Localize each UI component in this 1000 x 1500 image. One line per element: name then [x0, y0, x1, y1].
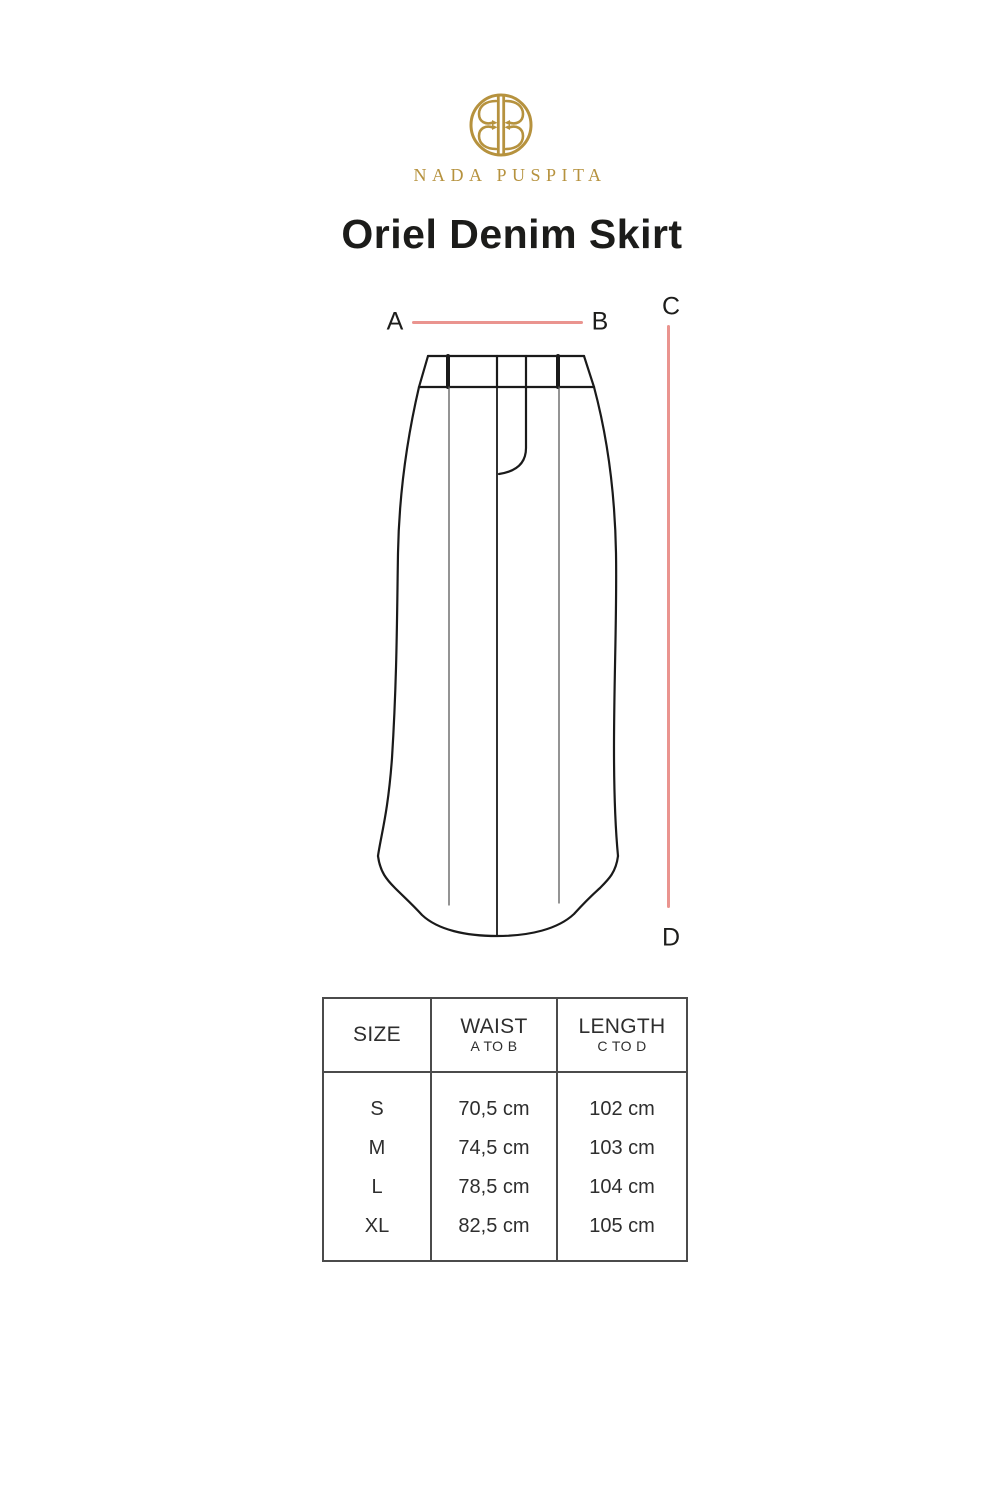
length-value: 102 cm [589, 1099, 655, 1119]
brand-logo-icon [467, 91, 535, 159]
measure-label-c: C [662, 293, 680, 322]
column-header-length: LENGTH C TO D [558, 999, 686, 1071]
measure-label-d: D [662, 924, 680, 953]
size-value: L [371, 1177, 382, 1197]
waist-value: 70,5 cm [458, 1099, 529, 1119]
size-column: S M L XL [324, 1073, 432, 1260]
waist-value: 74,5 cm [458, 1138, 529, 1158]
size-table-header: SIZE WAIST A TO B LENGTH C TO D [324, 999, 686, 1073]
column-subheader-length: C TO D [597, 1039, 646, 1054]
size-table: SIZE WAIST A TO B LENGTH C TO D S M L XL… [322, 997, 688, 1262]
size-value: XL [365, 1216, 389, 1236]
length-value: 105 cm [589, 1216, 655, 1236]
skirt-line-drawing [368, 348, 638, 948]
measure-label-b: B [592, 308, 609, 337]
column-header-size: SIZE [324, 999, 432, 1071]
waist-value: 78,5 cm [458, 1177, 529, 1197]
length-measure-line [667, 325, 670, 908]
size-value: S [370, 1099, 383, 1119]
length-column: 102 cm 103 cm 104 cm 105 cm [558, 1073, 686, 1260]
page-title: Oriel Denim Skirt [12, 211, 1000, 258]
waist-value: 82,5 cm [458, 1216, 529, 1236]
waist-measure-line [412, 321, 583, 324]
length-value: 103 cm [589, 1138, 655, 1158]
waist-column: 70,5 cm 74,5 cm 78,5 cm 82,5 cm [432, 1073, 558, 1260]
column-header-waist: WAIST A TO B [432, 999, 558, 1071]
size-table-body: S M L XL 70,5 cm 74,5 cm 78,5 cm 82,5 cm… [324, 1073, 686, 1260]
size-chart-page: NADA PUSPITA Oriel Denim Skirt A B C D [0, 0, 1000, 1500]
length-value: 104 cm [589, 1177, 655, 1197]
column-subheader-waist: A TO B [470, 1039, 517, 1054]
size-value: M [369, 1138, 386, 1158]
measure-label-a: A [387, 308, 404, 337]
brand-name: NADA PUSPITA [10, 165, 1000, 186]
